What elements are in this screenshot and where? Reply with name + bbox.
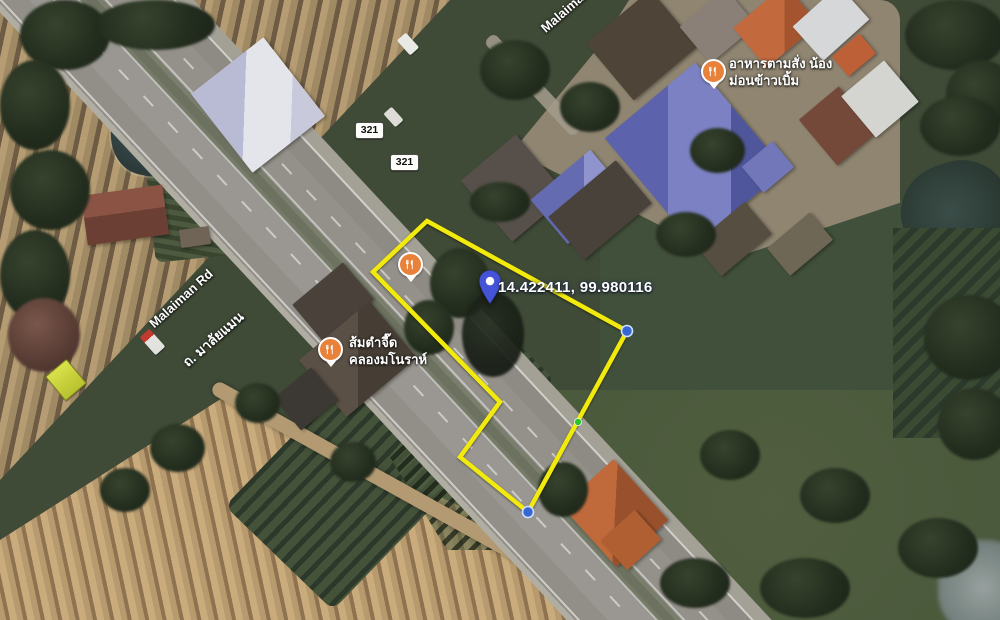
vertex-marker-0[interactable] [622,326,633,337]
poi-label-line1: อาหารตามสั่ง น้อง [729,55,832,72]
route-shield-321: 321 [355,122,384,139]
somtam-jeed-label[interactable]: ส้มตำจี๊ด คลองมโนราห์ [349,334,427,368]
parcel-overlay [0,0,1000,620]
satellite-map[interactable]: 14.422411, 99.980116 321 321 Malaiman Rd… [0,0,1000,620]
poi-label-line2: ม่อนข้าวเบิ้ม [729,72,832,89]
ahan-tam-sang-poi[interactable] [701,59,726,90]
restaurant-poi-parcel[interactable] [398,252,423,283]
somtam-jeed-poi[interactable] [318,337,343,368]
fork-knife-icon [325,344,336,355]
poi-label-line1: ส้มตำจี๊ด [349,334,427,351]
restaurant-icon [398,252,423,277]
vertex-marker-1[interactable] [523,507,534,518]
midpoint-marker-0[interactable] [574,418,581,425]
restaurant-icon [318,337,343,362]
poi-label-line2: คลองมโนราห์ [349,351,427,368]
fork-knife-icon [405,259,416,270]
ahan-tam-sang-label[interactable]: อาหารตามสั่ง น้อง ม่อนข้าวเบิ้ม [729,55,832,89]
restaurant-icon [701,59,726,84]
pin-coordinates-label: 14.422411, 99.980116 [498,279,653,296]
route-shield-321: 321 [390,154,419,171]
fork-knife-icon [708,66,719,77]
